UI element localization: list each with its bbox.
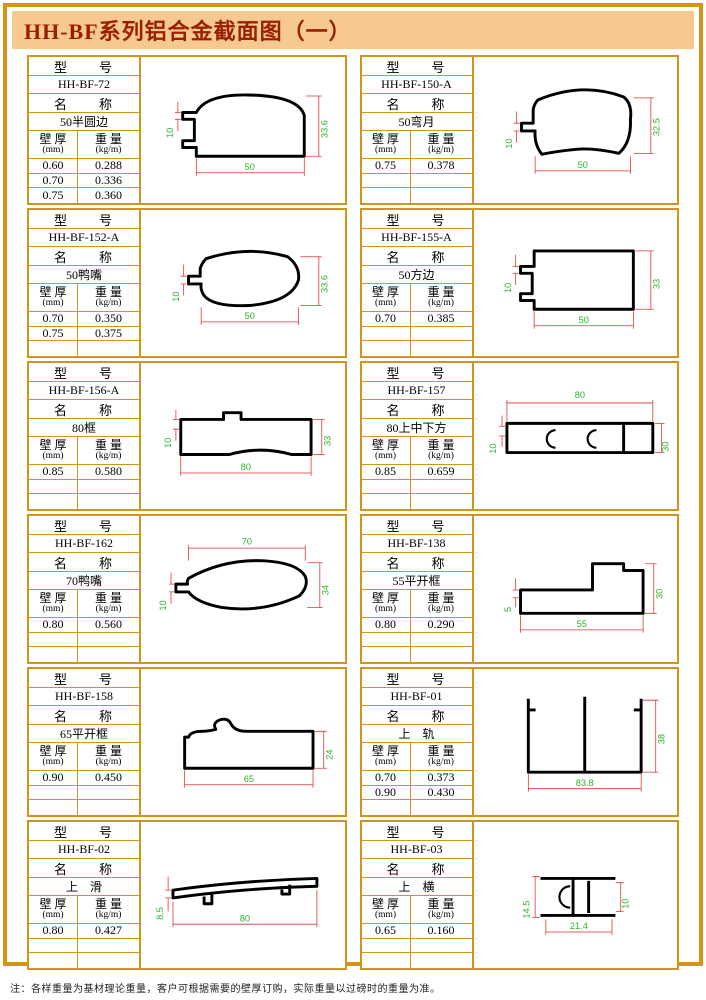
dim-right: 10 [621,899,631,909]
thickness-value [362,953,411,968]
thickness-value [362,327,411,342]
thickness-value: 0.60 [29,159,78,174]
profile-drawing: 65 24 [141,669,345,815]
thickness-header: 壁 厚(mm) [29,743,78,771]
spec-table: 型 号 HH-BF-158 名 称 65平开框 壁 厚(mm) 重 量(kg/m… [29,669,141,815]
thickness-value: 0.85 [362,465,411,480]
thickness-value: 0.90 [362,786,411,801]
profile-drawing: 80 33 10 [141,363,345,509]
model-label: 型 号 [29,57,139,76]
weight-value: 0.375 [78,327,139,342]
weight-header: 重 量(kg/m) [78,437,139,465]
model-label: 型 号 [362,516,472,535]
page-title: HH-BF系列铝合金截面图（一） [24,14,352,46]
weight-header: 重 量(kg/m) [78,131,139,159]
dim-bottom: 55 [577,619,587,629]
weight-header: 重 量(kg/m) [78,590,139,618]
name-label: 名 称 [362,859,472,878]
thickness-value [362,939,411,954]
thickness-value [29,494,78,509]
name-value: 上 轨 [362,725,472,743]
dim-bottom: 65 [243,774,253,784]
model-label: 型 号 [29,210,139,229]
weight-header: 重 量(kg/m) [78,743,139,771]
name-label: 名 称 [362,247,472,266]
model-value: HH-BF-03 [362,841,472,859]
dim-left: 8.5 [155,907,165,920]
weight-value: 0.378 [411,159,472,174]
profile-drawing: 50 32.5 10 [474,57,678,203]
thickness-value: 0.65 [362,924,411,939]
thickness-value [362,480,411,495]
weight-value: 0.560 [78,618,139,633]
thickness-value [29,633,78,648]
thickness-header: 壁 厚(mm) [362,284,411,312]
title-bar: HH-BF系列铝合金截面图（一） [12,11,694,49]
thickness-value [362,174,411,189]
dim-right: 30 [661,442,671,452]
model-label: 型 号 [362,210,472,229]
thickness-value [29,953,78,968]
profile-cell: 型 号 HH-BF-150-A 名 称 50弯月 壁 厚(mm) 重 量(kg/… [360,55,680,205]
dim-left: 10 [163,438,173,448]
weight-value [411,327,472,342]
weight-header: 重 量(kg/m) [78,284,139,312]
weight-value [411,647,472,662]
thickness-value: 0.70 [362,312,411,327]
model-value: HH-BF-155-A [362,229,472,247]
weight-header: 重 量(kg/m) [411,590,472,618]
name-value: 上 滑 [29,878,139,896]
thickness-header: 壁 厚(mm) [29,590,78,618]
weight-value [78,953,139,968]
profile-cell: 型 号 HH-BF-157 名 称 80上中下方 壁 厚(mm) 重 量(kg/… [360,361,680,511]
spec-table: 型 号 HH-BF-162 名 称 70鸭嘴 壁 厚(mm) 重 量(kg/m)… [29,516,141,662]
model-value: HH-BF-158 [29,688,139,706]
thickness-value [362,341,411,356]
weight-value [411,480,472,495]
dim-bottom: 50 [578,160,588,170]
thickness-header: 壁 厚(mm) [29,437,78,465]
dim-left: 5 [503,607,513,612]
model-value: HH-BF-72 [29,76,139,94]
dim-left: 10 [171,291,181,301]
thickness-value [362,800,411,815]
dim-right: 33 [652,279,662,289]
spec-table: 型 号 HH-BF-156-A 名 称 80框 壁 厚(mm) 重 量(kg/m… [29,363,141,509]
weight-value: 0.288 [78,159,139,174]
profile-cell: 型 号 HH-BF-155-A 名 称 50方边 壁 厚(mm) 重 量(kg/… [360,208,680,358]
profile-drawing: 50 33.6 10 [141,210,345,356]
weight-value [411,633,472,648]
dim-left: 10 [503,283,513,293]
thickness-header: 壁 厚(mm) [362,743,411,771]
profile-cell: 型 号 HH-BF-158 名 称 65平开框 壁 厚(mm) 重 量(kg/m… [27,667,347,817]
weight-value [411,953,472,968]
thickness-value: 0.75 [29,188,78,203]
model-value: HH-BF-162 [29,535,139,553]
thickness-header: 壁 厚(mm) [29,131,78,159]
thickness-value [29,647,78,662]
model-label: 型 号 [29,669,139,688]
profile-drawing: 83.8 38 [474,669,678,815]
dim-right: 33.6 [319,275,329,293]
model-label: 型 号 [362,669,472,688]
dim-left: 10 [504,138,514,148]
name-value: 70鸭嘴 [29,572,139,590]
name-label: 名 称 [362,94,472,113]
profile-drawing: 70 34 10 [141,516,345,662]
name-label: 名 称 [29,859,139,878]
dim-left: 14.5 [522,901,532,919]
weight-value: 0.659 [411,465,472,480]
profile-cell: 型 号 HH-BF-156-A 名 称 80框 壁 厚(mm) 重 量(kg/m… [27,361,347,511]
thickness-value: 0.80 [29,924,78,939]
weight-value: 0.350 [78,312,139,327]
profile-cell: 型 号 HH-BF-138 名 称 55平开框 壁 厚(mm) 重 量(kg/m… [360,514,680,664]
name-label: 名 称 [362,706,472,725]
dim-bottom: 50 [579,315,589,325]
thickness-value [362,647,411,662]
weight-value [78,494,139,509]
spec-table: 型 号 HH-BF-01 名 称 上 轨 壁 厚(mm) 重 量(kg/m) 0… [362,669,474,815]
thickness-value: 0.75 [29,327,78,342]
thickness-header: 壁 厚(mm) [29,284,78,312]
thickness-header: 壁 厚(mm) [362,437,411,465]
dim-right: 24 [324,750,334,760]
thickness-value [362,188,411,203]
page-frame: HH-BF系列铝合金截面图（一） 型 号 HH-BF-72 名 称 50半圆边 … [3,3,703,966]
dim-top: 70 [242,536,252,546]
dim-bottom: 21.4 [570,921,588,931]
thickness-value [29,800,78,815]
name-value: 80框 [29,419,139,437]
name-label: 名 称 [29,400,139,419]
name-label: 名 称 [29,553,139,572]
weight-value [411,174,472,189]
footnote: 注：各样重量为基材理论重量，客户可根据需要的壁厚订购，实际重量以过磅时的重量为准… [10,980,441,995]
profile-drawing: 50 33 10 [474,210,678,356]
dim-bottom: 50 [244,162,254,172]
name-label: 名 称 [29,247,139,266]
dim-bottom: 80 [240,913,250,923]
thickness-header: 壁 厚(mm) [362,590,411,618]
thickness-value: 0.90 [29,771,78,786]
weight-value [78,939,139,954]
spec-table: 型 号 HH-BF-150-A 名 称 50弯月 壁 厚(mm) 重 量(kg/… [362,57,474,203]
thickness-value [29,939,78,954]
thickness-value: 0.80 [362,618,411,633]
weight-value: 0.360 [78,188,139,203]
profile-cell: 型 号 HH-BF-72 名 称 50半圆边 壁 厚(mm) 重 量(kg/m)… [27,55,347,205]
thickness-value [362,494,411,509]
weight-value: 0.160 [411,924,472,939]
model-value: HH-BF-157 [362,382,472,400]
dim-bottom: 50 [244,311,254,321]
dim-right: 30 [655,589,665,599]
weight-value: 0.336 [78,174,139,189]
dim-right: 33.6 [319,120,329,138]
spec-table: 型 号 HH-BF-152-A 名 称 50鸭嘴 壁 厚(mm) 重 量(kg/… [29,210,141,356]
dim-right: 34 [320,585,330,595]
thickness-value: 0.70 [29,312,78,327]
weight-value [411,939,472,954]
name-value: 50方边 [362,266,472,284]
dim-right: 38 [657,734,667,744]
dim-top: 80 [575,390,585,400]
model-label: 型 号 [29,363,139,382]
thickness-header: 壁 厚(mm) [29,896,78,924]
name-label: 名 称 [29,94,139,113]
name-value: 上 横 [362,878,472,896]
model-label: 型 号 [29,822,139,841]
weight-value: 0.385 [411,312,472,327]
thickness-header: 壁 厚(mm) [362,896,411,924]
model-label: 型 号 [29,516,139,535]
dim-left: 10 [165,128,175,138]
model-value: HH-BF-02 [29,841,139,859]
model-label: 型 号 [362,822,472,841]
dim-right: 32.5 [652,118,662,136]
thickness-value: 0.70 [29,174,78,189]
profile-cell: 型 号 HH-BF-01 名 称 上 轨 壁 厚(mm) 重 量(kg/m) 0… [360,667,680,817]
model-value: HH-BF-156-A [29,382,139,400]
thickness-value: 0.80 [29,618,78,633]
weight-value [411,494,472,509]
model-label: 型 号 [362,363,472,382]
thickness-value: 0.75 [362,159,411,174]
weight-header: 重 量(kg/m) [411,896,472,924]
profile-drawing: 8.5 80 [141,822,345,968]
name-label: 名 称 [362,400,472,419]
dim-bottom: 83.8 [576,778,594,788]
name-label: 名 称 [362,553,472,572]
name-value: 80上中下方 [362,419,472,437]
weight-value [78,633,139,648]
model-value: HH-BF-150-A [362,76,472,94]
dim-left: 10 [488,444,498,454]
weight-value [78,341,139,356]
name-value: 50弯月 [362,113,472,131]
model-value: HH-BF-152-A [29,229,139,247]
spec-table: 型 号 HH-BF-03 名 称 上 横 壁 厚(mm) 重 量(kg/m) 0… [362,822,474,968]
weight-value [411,800,472,815]
spec-table: 型 号 HH-BF-72 名 称 50半圆边 壁 厚(mm) 重 量(kg/m)… [29,57,141,203]
weight-value: 0.427 [78,924,139,939]
name-value: 50鸭嘴 [29,266,139,284]
profile-drawing: 55 30 5 [474,516,678,662]
profile-drawing: 14.5 10 21.4 [474,822,678,968]
name-label: 名 称 [29,706,139,725]
weight-value [78,480,139,495]
spec-table: 型 号 HH-BF-138 名 称 55平开框 壁 厚(mm) 重 量(kg/m… [362,516,474,662]
weight-value: 0.430 [411,786,472,801]
weight-header: 重 量(kg/m) [411,284,472,312]
profile-cell: 型 号 HH-BF-152-A 名 称 50鸭嘴 壁 厚(mm) 重 量(kg/… [27,208,347,358]
model-value: HH-BF-01 [362,688,472,706]
thickness-header: 壁 厚(mm) [362,131,411,159]
profile-drawing: 80 10 30 [474,363,678,509]
spec-table: 型 号 HH-BF-02 名 称 上 滑 壁 厚(mm) 重 量(kg/m) 0… [29,822,141,968]
spec-table: 型 号 HH-BF-157 名 称 80上中下方 壁 厚(mm) 重 量(kg/… [362,363,474,509]
name-value: 55平开框 [362,572,472,590]
weight-header: 重 量(kg/m) [411,437,472,465]
profile-grid: 型 号 HH-BF-72 名 称 50半圆边 壁 厚(mm) 重 量(kg/m)… [7,53,699,972]
profile-drawing: 50 33.6 10 [141,57,345,203]
dim-left: 10 [158,600,168,610]
spec-table: 型 号 HH-BF-155-A 名 称 50方边 壁 厚(mm) 重 量(kg/… [362,210,474,356]
weight-value [78,800,139,815]
weight-value [78,786,139,801]
thickness-value [29,341,78,356]
weight-value: 0.373 [411,771,472,786]
dim-right: 33 [322,436,332,446]
thickness-value [29,786,78,801]
weight-value [411,341,472,356]
weight-value: 0.580 [78,465,139,480]
weight-header: 重 量(kg/m) [411,743,472,771]
thickness-value: 0.85 [29,465,78,480]
weight-value [78,647,139,662]
thickness-value [362,633,411,648]
weight-value: 0.450 [78,771,139,786]
thickness-value: 0.70 [362,771,411,786]
weight-header: 重 量(kg/m) [78,896,139,924]
profile-cell: 型 号 HH-BF-03 名 称 上 横 壁 厚(mm) 重 量(kg/m) 0… [360,820,680,970]
profile-cell: 型 号 HH-BF-162 名 称 70鸭嘴 壁 厚(mm) 重 量(kg/m)… [27,514,347,664]
profile-cell: 型 号 HH-BF-02 名 称 上 滑 壁 厚(mm) 重 量(kg/m) 0… [27,820,347,970]
weight-value [411,188,472,203]
name-value: 65平开框 [29,725,139,743]
thickness-value [29,480,78,495]
weight-value: 0.290 [411,618,472,633]
name-value: 50半圆边 [29,113,139,131]
model-value: HH-BF-138 [362,535,472,553]
model-label: 型 号 [362,57,472,76]
dim-bottom: 80 [241,462,251,472]
weight-header: 重 量(kg/m) [411,131,472,159]
